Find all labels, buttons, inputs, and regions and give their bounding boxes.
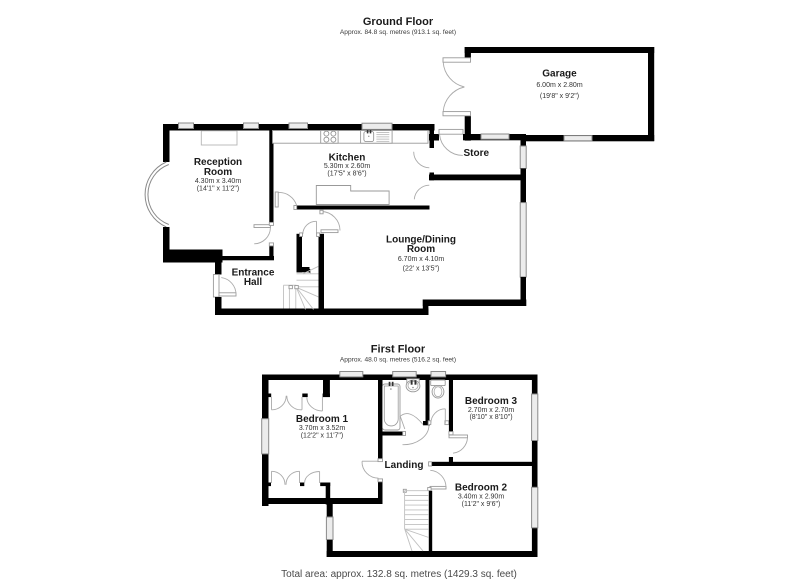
svg-text:5.30m x 2.60m: 5.30m x 2.60m [324, 163, 370, 170]
svg-text:3.70m x 3.52m: 3.70m x 3.52m [299, 425, 345, 432]
svg-text:Bedroom 3: Bedroom 3 [465, 396, 518, 407]
svg-text:(17'5" x 8'6"): (17'5" x 8'6") [327, 171, 366, 178]
svg-text:4.30m x 3.40m: 4.30m x 3.40m [195, 178, 241, 185]
svg-text:Landing: Landing [385, 460, 424, 471]
svg-text:Hall: Hall [244, 277, 263, 288]
svg-text:(8'10" x 8'10"): (8'10" x 8'10") [469, 414, 512, 421]
svg-text:Room: Room [407, 244, 435, 255]
svg-text:Kitchen: Kitchen [329, 153, 366, 164]
svg-text:Total area: approx. 132.8 sq.: Total area: approx. 132.8 sq. metres (14… [281, 569, 517, 580]
svg-text:Garage: Garage [542, 69, 577, 80]
svg-text:6.00m x 2.80m: 6.00m x 2.80m [536, 82, 582, 89]
svg-text:Bedroom 2: Bedroom 2 [455, 483, 508, 494]
svg-text:2.70m x 2.70m: 2.70m x 2.70m [468, 407, 514, 414]
svg-text:(14'1" x 11'2"): (14'1" x 11'2") [197, 186, 240, 193]
svg-text:(22' x 13'5"): (22' x 13'5") [403, 265, 440, 272]
svg-text:Room: Room [204, 167, 232, 178]
svg-text:Approx. 84.8 sq. metres (913.1: Approx. 84.8 sq. metres (913.1 sq. feet) [340, 29, 456, 36]
svg-text:(11'2" x 9'6"): (11'2" x 9'6") [462, 501, 501, 508]
svg-text:Approx. 48.0 sq. metres (516.2: Approx. 48.0 sq. metres (516.2 sq. feet) [340, 357, 456, 364]
svg-text:First Floor: First Floor [371, 344, 426, 356]
svg-text:(12'2" x 11'7"): (12'2" x 11'7") [301, 432, 344, 439]
svg-text:Bedroom 1: Bedroom 1 [296, 414, 349, 425]
svg-text:Store: Store [464, 148, 490, 159]
svg-text:(19'8" x 9'2"): (19'8" x 9'2") [540, 93, 579, 100]
svg-text:3.40m x 2.90m: 3.40m x 2.90m [458, 493, 504, 500]
svg-text:Ground Floor: Ground Floor [363, 16, 434, 28]
svg-text:6.70m x 4.10m: 6.70m x 4.10m [398, 256, 444, 263]
